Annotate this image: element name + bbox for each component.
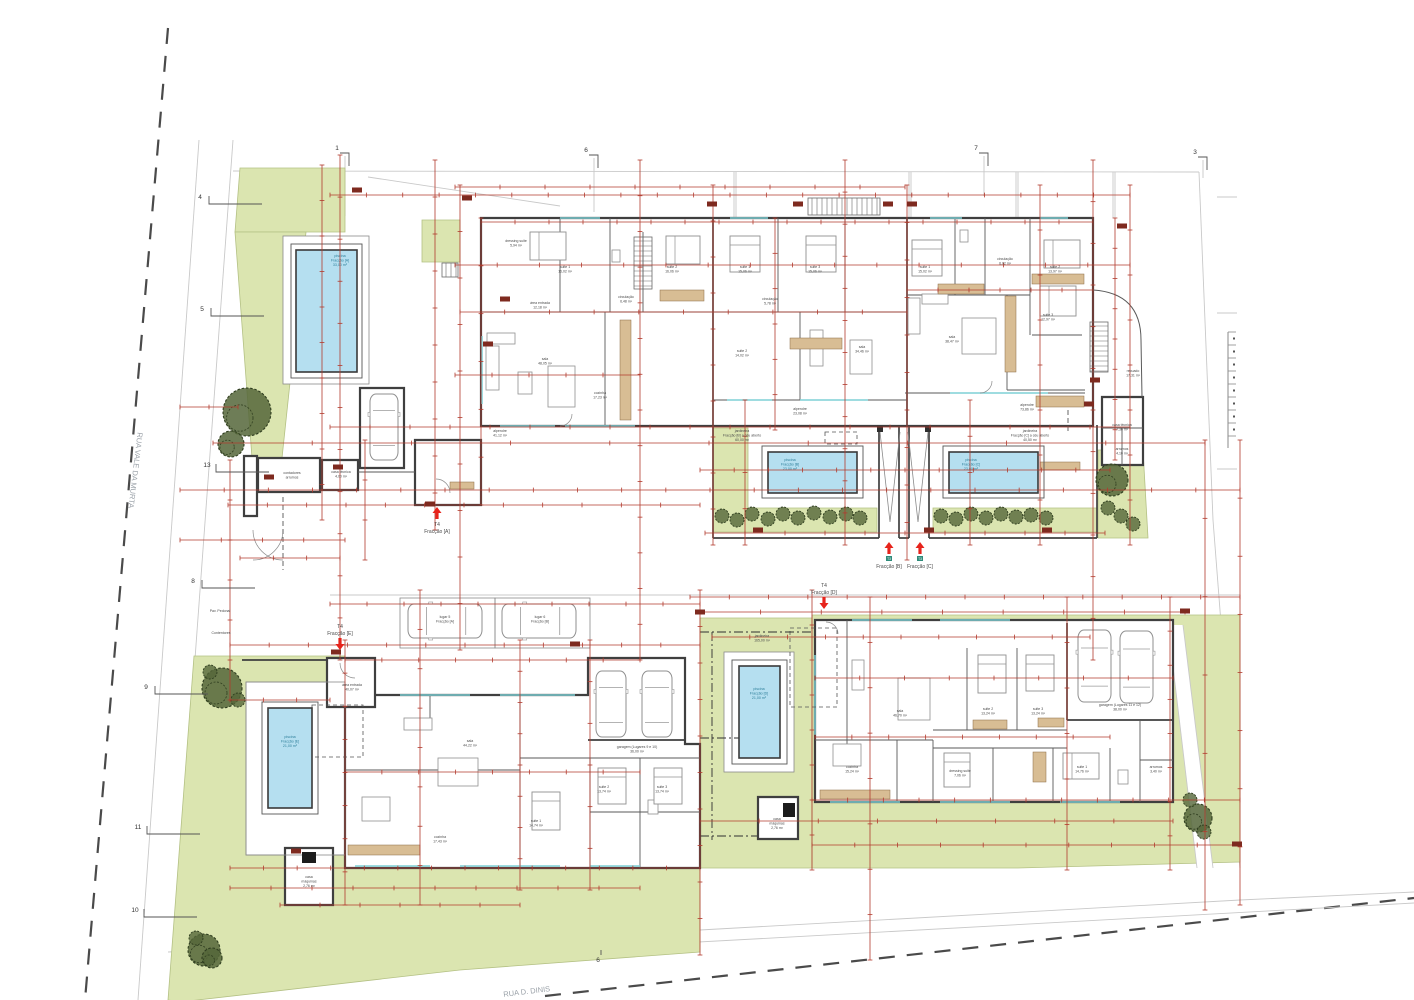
fraction-marker: T3Fracção [B]: [876, 542, 902, 570]
stair-hatch: [808, 198, 880, 215]
room-label-line: 12,97 m²: [1041, 317, 1056, 321]
shrub: [823, 510, 837, 524]
fraction-marker: T3Fracção [C]: [907, 542, 933, 570]
room-label-line: dressing suite: [505, 239, 527, 243]
room-label-line: suite 1: [560, 265, 570, 269]
room-label: circulação5,78 m²: [762, 297, 778, 305]
room-label: Contentores: [211, 631, 230, 635]
reference-tag: [883, 202, 893, 207]
fraction-name: Fracção [E]: [327, 631, 353, 637]
room-label-line: casa técnica: [331, 470, 351, 474]
bed: [1044, 240, 1080, 268]
bracket-dot: [1233, 416, 1235, 418]
room-label-line: suite 2: [599, 785, 609, 789]
room-label-line: recuado: [1127, 369, 1140, 373]
furniture: [404, 718, 432, 730]
entrance-arrow: [916, 542, 925, 554]
pool-label: piscina: [284, 735, 295, 739]
bracket-dot: [1233, 377, 1235, 379]
grid-marker-number: 13: [203, 462, 211, 469]
room-label-line: 14,76 m²: [1075, 769, 1090, 773]
room-label: contadoresarrumos: [283, 471, 301, 479]
room-label-line: máquinas: [301, 879, 316, 883]
shrub: [994, 507, 1008, 521]
bracket-dot: [1233, 403, 1235, 405]
reference-tag: [1090, 378, 1100, 383]
grid-marker-leader: [1198, 157, 1207, 170]
room-label-line: sala: [467, 739, 473, 743]
road-centerline-left: [85, 28, 168, 1000]
stair-outline: [808, 198, 880, 215]
bed-frame: [530, 232, 566, 260]
room-label-line: suite 1: [920, 265, 930, 269]
dimension-line: [330, 425, 1130, 430]
bracket-dot: [1233, 390, 1235, 392]
shrub: [1024, 508, 1038, 522]
site-plan-drawing: RUA VALE DA MURTARUA D. DINIS piscinaFra…: [0, 0, 1414, 1000]
furniture: [852, 660, 864, 690]
reference-tag: [695, 610, 705, 615]
room-label-line: 13,24 m²: [981, 711, 996, 715]
furniture: [486, 346, 499, 390]
room-label-line: 17,23 m²: [593, 395, 608, 399]
dimension-line: [230, 643, 700, 648]
room-label-line: 13,97 m²: [1048, 269, 1063, 273]
room-label-line: 46,70 m²: [893, 713, 908, 717]
fraction-name: Fracção [C]: [907, 564, 933, 570]
fraction-name: Fracção [A]: [424, 529, 450, 535]
shrub: [791, 511, 805, 525]
reference-tag: [753, 528, 763, 533]
pool-label: 21,00 m²: [752, 696, 767, 700]
grid-marker-top: 7: [974, 145, 988, 166]
shrub: [839, 507, 853, 521]
door-swing-arc: [253, 530, 283, 560]
parcel-boundary-line: [1240, 892, 1414, 900]
room-label-line: 13,74 m²: [655, 789, 670, 793]
room-label: jardineira165,00 m²: [754, 634, 771, 642]
grid-marker-leader: [202, 580, 255, 588]
pool-label: Fracção [E]: [281, 740, 299, 744]
shrub: [979, 511, 993, 525]
room-label: recuado17,31 m²: [1126, 369, 1141, 377]
room-label: cozinha15,24 m²: [845, 765, 860, 773]
grid-marker-number: 4: [198, 194, 202, 201]
room-label-line: dressing suite: [949, 769, 971, 773]
shrub: [1126, 517, 1140, 531]
reference-tag: [924, 528, 934, 533]
room-label-line: 6,02 m²: [999, 261, 1012, 265]
grid-marker-top: 6: [584, 147, 598, 168]
parking-bracket: [1228, 332, 1236, 448]
shrub: [730, 513, 744, 527]
car-mirror: [398, 412, 400, 416]
room-label-line: suite 1: [1077, 765, 1087, 769]
shrub: [203, 665, 217, 679]
pool-label: Fracção [D]: [750, 692, 769, 696]
room-label-line: casa: [773, 817, 780, 821]
room-label-line: 34,46 m²: [855, 349, 870, 353]
tree: [218, 431, 244, 457]
room-label-line: suite 1: [740, 265, 750, 269]
room-label-line: 2,76 m²: [771, 826, 784, 830]
room-label-line: 5,94 m²: [510, 243, 523, 247]
room-label: circulação6,02 m²: [997, 257, 1013, 265]
reference-tag: [570, 642, 580, 647]
room-label-line: 60,00 m²: [735, 438, 750, 442]
shrub: [1101, 501, 1115, 515]
reference-tag: [907, 202, 917, 207]
room-label-line: 13,24 m²: [1031, 711, 1046, 715]
reference-tag: [331, 650, 341, 655]
pool-water: [268, 708, 312, 808]
room-label-line: 12,18 m²: [533, 305, 548, 309]
room-label-line: Fracção [B] a céu aberto: [723, 433, 761, 437]
grid-marker-number: 5: [200, 306, 204, 313]
car: [594, 671, 628, 737]
pool: piscinaFracção [A]33,00 m²: [291, 244, 362, 378]
room-label: Pav. Pedonal: [210, 609, 231, 613]
room-label-line: Fracção [B]: [531, 619, 549, 623]
equipment-box: [783, 803, 795, 817]
green-area: [422, 220, 460, 262]
room-label-line: suite 2: [667, 265, 677, 269]
grid-marker-top: 3: [1193, 149, 1207, 170]
bed: [1040, 286, 1076, 316]
car-body: [1120, 631, 1153, 703]
room-label-line: garagem (Lugares 9 e 10): [617, 745, 657, 749]
dimension-line: [228, 503, 700, 508]
room-label-line: suite 3: [1043, 313, 1053, 317]
cabinet-wardrobe: [1033, 752, 1046, 782]
room-label-line: 6,48 m²: [620, 299, 633, 303]
pool: piscinaFracção [E]21,00 m²: [262, 702, 318, 814]
grid-marker-number: 9: [144, 684, 148, 691]
grid-marker-leader: [589, 155, 598, 168]
room-label-line: jardineira: [1022, 429, 1037, 433]
tree-canopy: [218, 431, 244, 457]
shrub: [934, 509, 948, 523]
pool-label: piscina: [965, 458, 976, 462]
parcel-boundary-line: [233, 171, 1199, 172]
room-label-line: jardineira: [754, 634, 769, 638]
pool-water: [296, 250, 357, 372]
entrance-arrow: [820, 597, 829, 609]
room-label: arrumos4,10 m²: [1116, 447, 1129, 455]
reference-tag: [352, 188, 362, 193]
fraction-type: T4: [821, 583, 827, 589]
room-label-line: garagem (Lugares 11 e 12): [1099, 703, 1141, 707]
room-label-line: arrumos: [1116, 447, 1129, 451]
cabinet-wardrobe: [660, 290, 704, 301]
furniture: [922, 294, 948, 304]
grid-marker-number: 1: [335, 145, 339, 152]
reference-tag: [1042, 528, 1052, 533]
car-mirror: [1118, 651, 1120, 655]
room-label-line: sala: [859, 345, 865, 349]
room-label-line: 165,00 m²: [754, 638, 771, 642]
car-mirror: [523, 638, 527, 640]
reference-tag: [483, 342, 493, 347]
room-label-line: 38,47 m²: [945, 339, 960, 343]
room-label-line: lugar 5: [440, 615, 451, 619]
tree-canopy: [223, 388, 271, 436]
car: [1118, 631, 1155, 703]
cabinet-wardrobe: [450, 482, 474, 489]
room-label-line: alpendre: [793, 407, 807, 411]
room-label-line: 3,40 m²: [1150, 769, 1163, 773]
car-mirror: [1153, 651, 1155, 655]
type-badge-text: T3: [918, 557, 922, 561]
shrub: [189, 931, 203, 945]
grid-marker-number: 6: [596, 957, 600, 964]
door-swing-arc: [253, 530, 283, 560]
room-label: alpendre41,12 m²: [493, 429, 508, 437]
dimension-line: [455, 185, 905, 190]
pool-label: Fracção [B]: [781, 463, 799, 467]
room-label: arrumos3,40 m²: [1150, 765, 1163, 773]
room-label-line: 40,50 m²: [1023, 438, 1038, 442]
car-mirror: [1111, 650, 1113, 654]
room-label-line: 48,05 m²: [538, 361, 553, 365]
room-label-line: 2,76 m²: [303, 884, 316, 888]
parcel-boundary-line: [700, 900, 1240, 930]
room-label-line: cozinha: [594, 391, 606, 395]
car-body: [596, 671, 626, 737]
curved-wall: [1093, 290, 1142, 397]
car-mirror: [1076, 650, 1078, 654]
road-label-bottom: RUA D. DINIS: [503, 984, 551, 999]
grid-marker-number: 3: [1193, 149, 1197, 156]
room-label-line: sala: [542, 357, 548, 361]
ramp-mark: [880, 432, 900, 522]
car-body: [642, 671, 672, 737]
furniture: [362, 797, 390, 821]
shrub: [807, 506, 821, 520]
shrub: [949, 512, 963, 526]
dimension-line: [700, 610, 1185, 615]
room-label-line: área entrada: [342, 683, 362, 687]
room-label-line: 4,00 m²: [335, 474, 348, 478]
bed-frame: [1026, 655, 1054, 691]
room-label-line: casa: [305, 875, 312, 879]
fraction-name: Fracção [D]: [811, 590, 837, 596]
dimension-line: [180, 538, 345, 543]
shrub: [715, 509, 729, 523]
room-label-line: circulação: [997, 257, 1013, 261]
shrub: [1039, 511, 1053, 525]
grid-marker-leader: [979, 153, 988, 166]
room-label-line: 13,74 m²: [597, 789, 612, 793]
room-label-line: Fracção [C] a céu aberto: [1011, 433, 1050, 437]
cabinet-wardrobe: [1005, 296, 1016, 372]
bed: [978, 655, 1006, 693]
room-label-line: Fracção [A]: [436, 619, 454, 623]
pool-label: piscina: [784, 458, 795, 462]
car: [1076, 630, 1113, 702]
grid-marker-number: 10: [131, 907, 139, 914]
reference-tag: [500, 297, 510, 302]
furniture: [908, 298, 920, 334]
room-label-line: Contentores: [211, 631, 230, 635]
room-label-line: suite 2: [737, 349, 747, 353]
fraction-marker: T4Fracção [D]: [811, 583, 837, 609]
room-label-line: lugar 6: [535, 615, 546, 619]
room-label: circulação6,48 m²: [618, 295, 634, 303]
furniture: [833, 744, 861, 766]
room-label-line: suite 3: [657, 785, 667, 789]
room-label-line: suite 1: [531, 819, 541, 823]
dimension-line: [330, 193, 1130, 198]
room-label-line: 4,10 m²: [1116, 451, 1129, 455]
room-label-line: Pav. Pedonal: [210, 609, 231, 613]
reference-tag: [264, 475, 274, 480]
room-label-line: 14,74 m²: [529, 823, 544, 827]
room-label-line: 44,22 m²: [463, 743, 478, 747]
cabinet-wardrobe: [820, 790, 890, 799]
pool-label: 23,00 m²: [783, 467, 798, 471]
room-label: cozinha17,23 m²: [593, 391, 608, 399]
building-outline: [415, 440, 481, 505]
room-label-line: máquinas: [769, 821, 784, 825]
pool-label: 21,00 m²: [283, 744, 298, 748]
room-label-line: suite 3: [1033, 707, 1043, 711]
bed-frame: [1040, 286, 1076, 316]
entrance-arrow: [885, 542, 894, 554]
reference-tag: [333, 465, 343, 470]
type-badge-text: T3: [887, 557, 891, 561]
furniture: [548, 366, 575, 407]
room-label-line: arrumos: [286, 475, 299, 479]
entrance-arrow: [433, 507, 442, 519]
grid-marker-top: 1: [335, 145, 349, 166]
room-label-line: 73,86 m²: [1020, 407, 1035, 411]
furniture: [960, 230, 968, 242]
room-label-line: 15,06 m²: [738, 269, 753, 273]
reference-tag: [462, 196, 472, 201]
reference-tag: [1084, 402, 1094, 407]
room-label-line: cozinha: [846, 765, 858, 769]
room-label-line: 36,00 m²: [630, 749, 645, 753]
grid-marker-number: 6: [584, 147, 588, 154]
reference-tag: [1232, 842, 1242, 847]
cabinet-wardrobe: [348, 845, 420, 855]
room-label-line: 16,06 m²: [665, 269, 680, 273]
room-label-line: 41,12 m²: [493, 433, 508, 437]
cabinet-wardrobe: [620, 320, 631, 420]
cabinet-wardrobe: [1038, 718, 1064, 727]
bracket-dot: [1233, 429, 1235, 431]
car-mirror: [594, 689, 596, 693]
room-label-line: alpendre: [493, 429, 507, 433]
room-label-line: 15,02 m²: [918, 269, 933, 273]
bracket-dot: [1233, 338, 1235, 340]
grid-marker-number: 11: [135, 824, 142, 831]
parcel-boundary-line: [1199, 172, 1213, 520]
reference-tag: [707, 202, 717, 207]
bracket-dot: [1233, 364, 1235, 366]
room-label-line: arrumos: [1150, 765, 1163, 769]
site-plan-stage: RUA VALE DA MURTARUA D. DINIS piscinaFra…: [0, 0, 1414, 1000]
room-label-line: casa técnica: [1112, 423, 1132, 427]
road-label-left: RUA VALE DA MURTA: [126, 432, 144, 509]
reference-tag: [425, 502, 435, 507]
pool-label: 23,00 m²: [964, 467, 979, 471]
furniture: [612, 250, 620, 262]
room-label-line: circulação: [762, 297, 778, 301]
fraction-type: T4: [434, 522, 440, 528]
pool: piscinaFracção [D]21,00 m²: [732, 660, 787, 764]
reference-tag: [793, 202, 803, 207]
room-label-line: 7,06 m²: [954, 773, 967, 777]
bracket-dot: [1233, 351, 1235, 353]
reference-tag: [291, 849, 301, 854]
cabinet-wardrobe: [938, 284, 984, 294]
bed: [666, 236, 700, 264]
pool-water: [739, 666, 780, 758]
bed: [1026, 655, 1054, 691]
car-mirror: [429, 638, 433, 640]
cabinet-wardrobe: [1036, 396, 1084, 407]
shrub: [853, 511, 867, 525]
reference-tag: [1180, 609, 1190, 614]
dashed-outline: [825, 432, 857, 444]
fraction-marker: T4Fracção [A]: [424, 507, 450, 535]
room-label-line: 15,24 m²: [845, 769, 860, 773]
building-outline: [244, 456, 257, 516]
bed: [530, 232, 566, 260]
green-area: [235, 168, 345, 232]
room-label-line: suite 2: [983, 707, 993, 711]
parcel-boundary-line: [368, 177, 560, 206]
car-mirror: [640, 689, 642, 693]
car-mirror: [626, 689, 628, 693]
car-body: [1078, 630, 1111, 702]
shrub: [776, 507, 790, 521]
bed-frame: [978, 655, 1006, 693]
bed-frame: [1044, 240, 1080, 268]
pool-label: Fracção [C]: [962, 463, 981, 467]
grid-marker-number: 7: [974, 145, 978, 152]
pool-water: [768, 452, 857, 493]
room-label-line: 14,02 m²: [735, 353, 750, 357]
pool-water: [949, 452, 1038, 493]
room-label-line: suite 2: [1050, 265, 1060, 269]
tree: [1096, 464, 1128, 496]
tree: [202, 948, 222, 968]
room-label-line: área entrada: [530, 301, 550, 305]
ramp-mark: [908, 432, 928, 522]
cabinet-wardrobe: [1040, 462, 1080, 470]
grid-marker-number: 8: [191, 578, 195, 585]
room-label-line: 5,78 m²: [764, 301, 777, 305]
fraction-name: Fracção [B]: [876, 564, 902, 570]
room-label-line: suite 3: [810, 265, 820, 269]
furniture: [962, 318, 996, 354]
room-label-line: 23,08 m²: [793, 411, 808, 415]
room-label: cozinha17,43 m²: [433, 835, 448, 843]
room-label-line: 17,31 m²: [1126, 373, 1141, 377]
room-label-line: 17,43 m²: [433, 839, 448, 843]
room-label-line: sala: [897, 709, 903, 713]
dimension-line: [330, 602, 700, 607]
room-label-line: 40,07 m²: [345, 687, 360, 691]
room-label-line: alpendre: [1020, 403, 1034, 407]
equipment-box: [302, 852, 316, 863]
reference-tag: [1117, 224, 1127, 229]
car: [640, 671, 674, 737]
room-label: jardineiraFracção [C] a céu aberto40,50 …: [1011, 429, 1050, 442]
